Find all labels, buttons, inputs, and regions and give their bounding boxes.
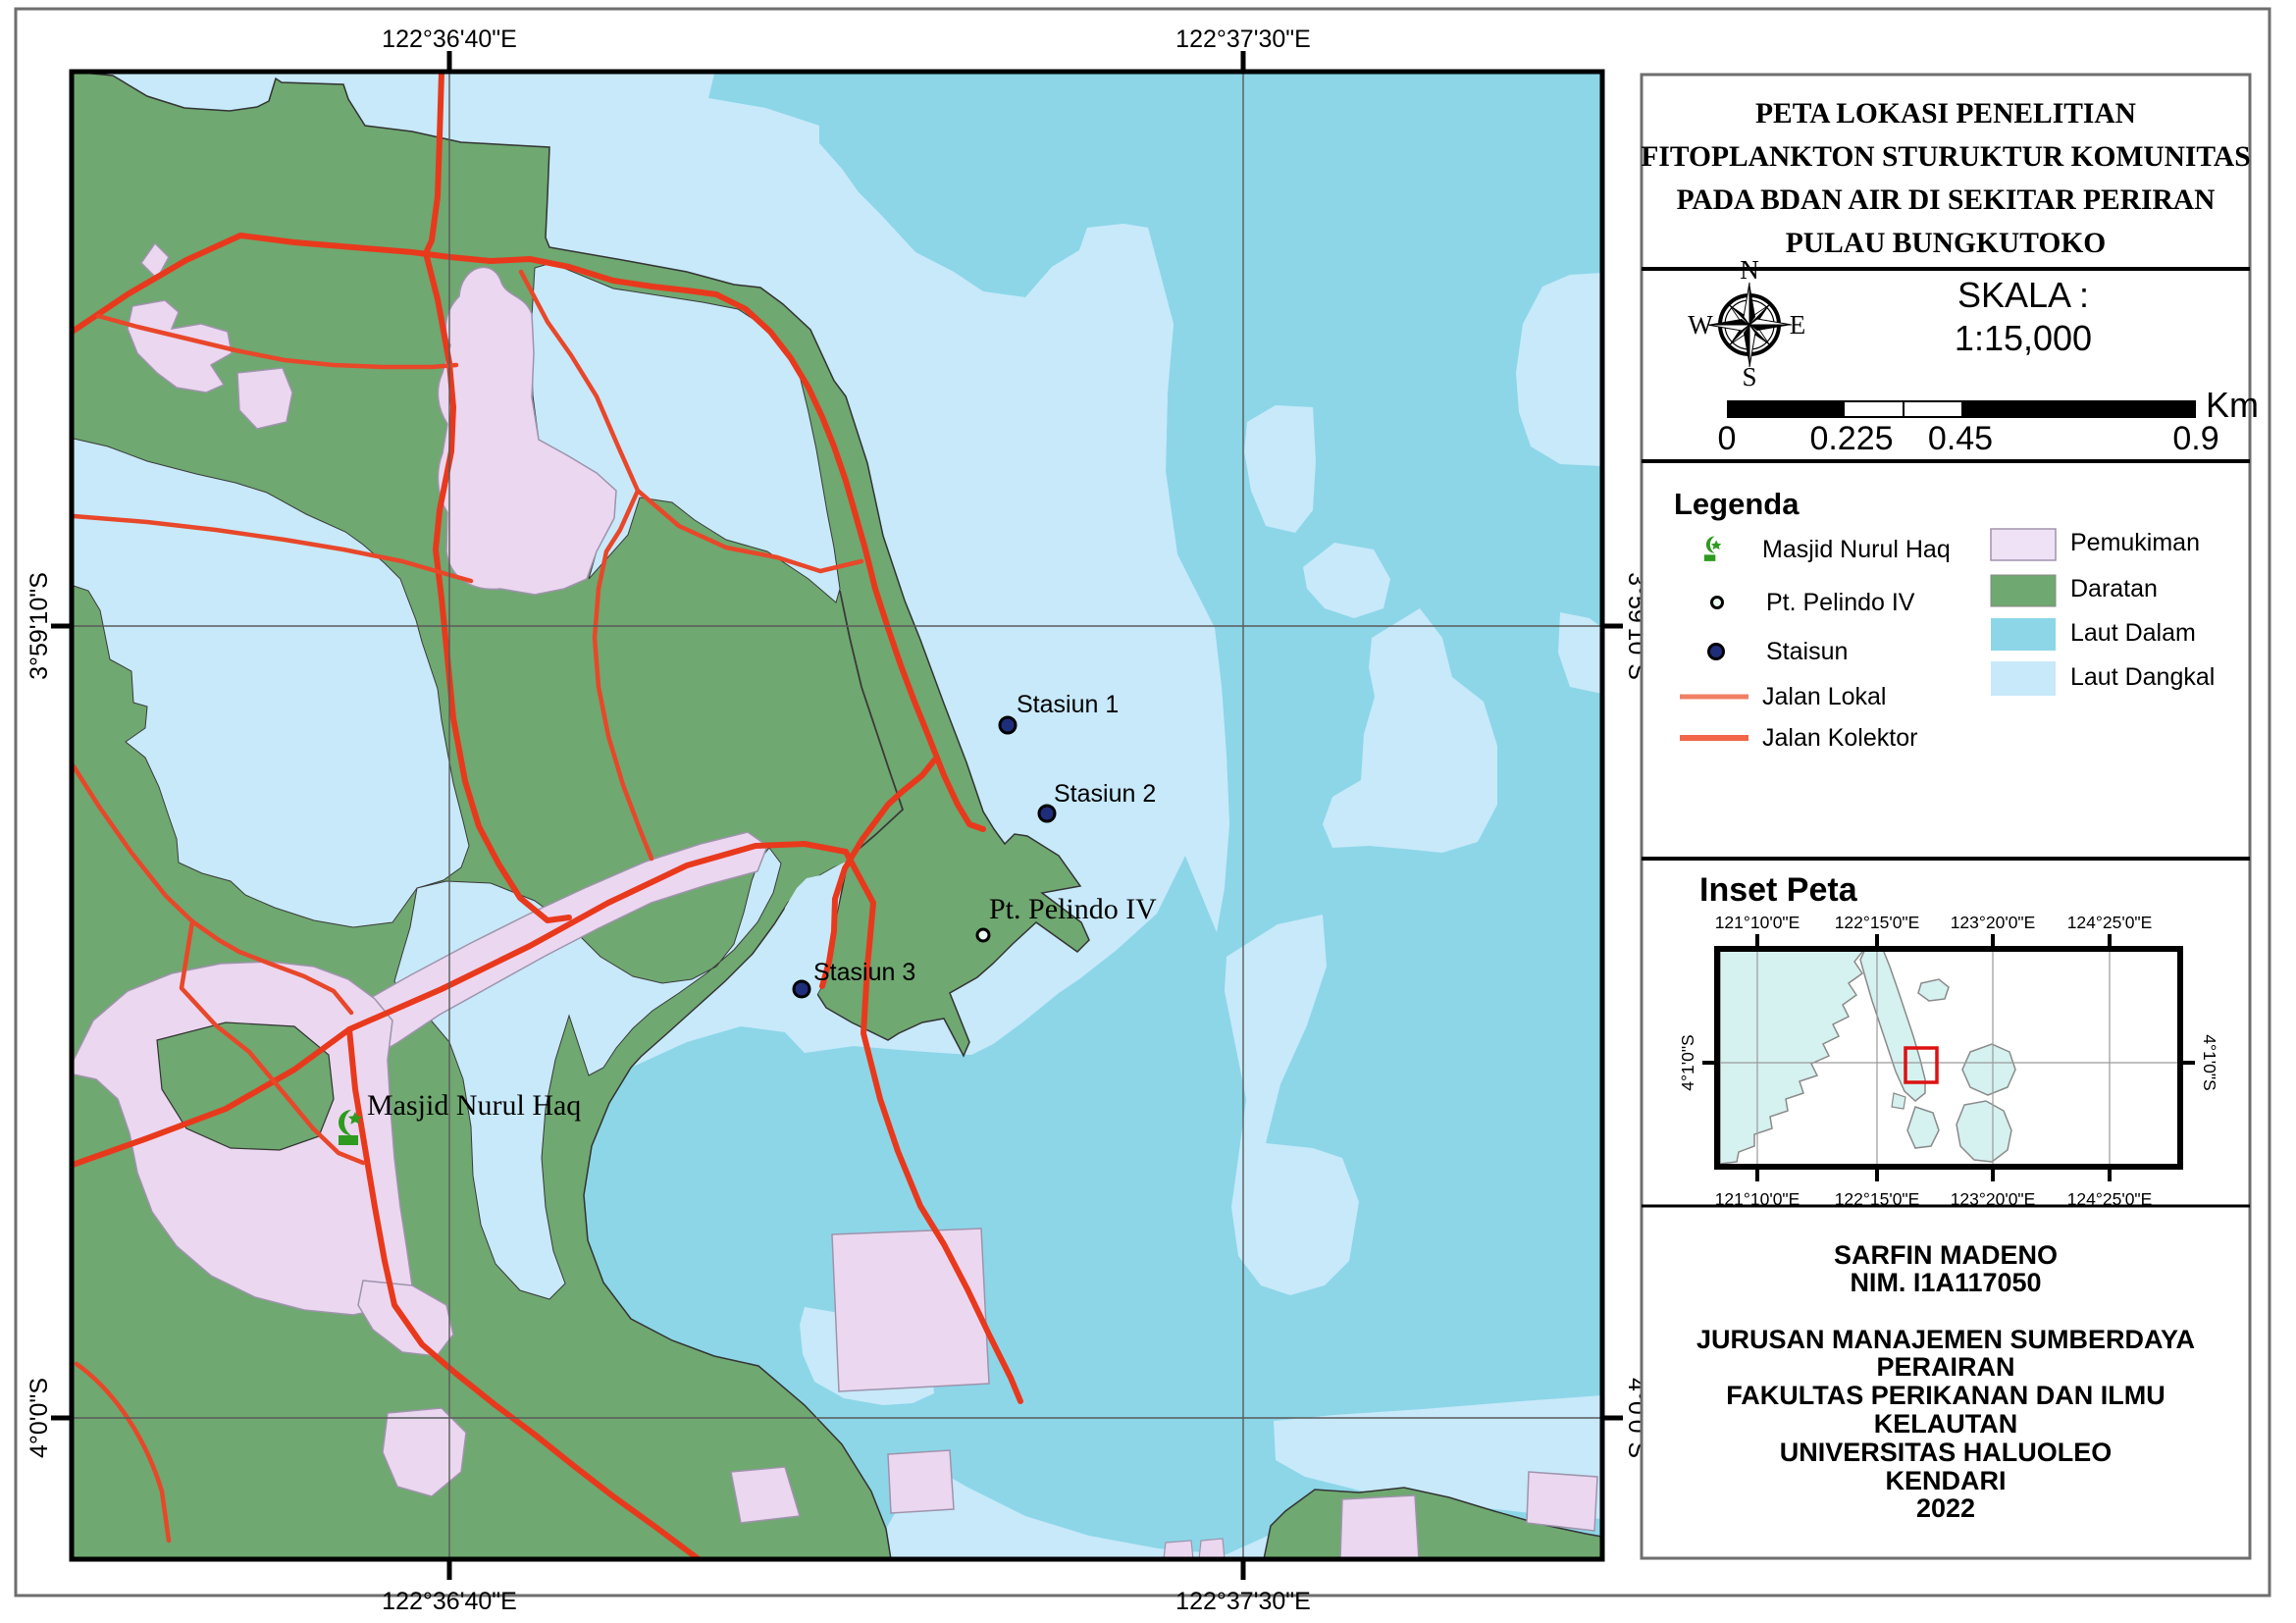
- svg-text:FITOPLANKTON STURUKTUR KOMUNIT: FITOPLANKTON STURUKTUR KOMUNITAS: [1641, 141, 2250, 173]
- svg-text:4°1'0"S: 4°1'0"S: [1678, 1034, 1697, 1090]
- svg-text:122°36'40"E: 122°36'40"E: [382, 1588, 517, 1615]
- svg-text:JURUSAN MANAJEMEN SUMBERDAYA: JURUSAN MANAJEMEN SUMBERDAYA: [1696, 1325, 2195, 1354]
- svg-text:KENDARI: KENDARI: [1885, 1466, 2006, 1495]
- svg-text:124°25'0"E: 124°25'0"E: [2067, 1189, 2153, 1209]
- svg-text:PULAU BUNGKUTOKO: PULAU BUNGKUTOKO: [1786, 228, 2106, 259]
- svg-text:124°25'0"E: 124°25'0"E: [2067, 913, 2153, 932]
- svg-text:0.45: 0.45: [1928, 420, 1993, 457]
- svg-text:Stasiun 1: Stasiun 1: [1017, 691, 1119, 718]
- svg-text:SKALA :: SKALA :: [1957, 275, 2089, 315]
- svg-text:123°20'0"E: 123°20'0"E: [1951, 913, 2036, 932]
- svg-text:E: E: [1790, 310, 1806, 340]
- svg-text:121°10'0"E: 121°10'0"E: [1715, 1189, 1800, 1209]
- svg-text:Laut Dangkal: Laut Dangkal: [2070, 663, 2215, 691]
- svg-text:N: N: [1740, 255, 1759, 285]
- svg-text:Pt. Pelindo IV: Pt. Pelindo IV: [1766, 589, 1915, 616]
- svg-text:Staisun: Staisun: [1766, 638, 1848, 665]
- svg-text:0: 0: [1718, 420, 1737, 457]
- svg-text:UNIVERSITAS HALUOLEO: UNIVERSITAS HALUOLEO: [1780, 1438, 2113, 1467]
- svg-text:122°15'0"E: 122°15'0"E: [1835, 913, 1920, 932]
- svg-text:3°59'10"S: 3°59'10"S: [26, 572, 53, 680]
- svg-text:Jalan Kolektor: Jalan Kolektor: [1762, 724, 1917, 752]
- svg-text:KELAUTAN: KELAUTAN: [1874, 1409, 2017, 1439]
- svg-text:Pemukiman: Pemukiman: [2070, 529, 2200, 556]
- svg-text:FAKULTAS PERIKANAN DAN ILMU: FAKULTAS PERIKANAN DAN ILMU: [1726, 1381, 2165, 1410]
- svg-text:122°36'40"E: 122°36'40"E: [382, 26, 517, 53]
- svg-text:4°1'0"S: 4°1'0"S: [2200, 1034, 2219, 1090]
- svg-text:W: W: [1688, 310, 1713, 340]
- svg-text:121°10'0"E: 121°10'0"E: [1715, 913, 1800, 932]
- svg-text:Masjid Nurul Haq: Masjid Nurul Haq: [367, 1089, 581, 1122]
- svg-text:122°37'30"E: 122°37'30"E: [1175, 26, 1311, 53]
- svg-text:122°15'0"E: 122°15'0"E: [1835, 1189, 1920, 1209]
- svg-text:1:15,000: 1:15,000: [1955, 318, 2092, 358]
- svg-text:Km: Km: [2206, 385, 2259, 425]
- svg-text:PADA BDAN AIR DI SEKITAR PERIR: PADA BDAN AIR DI SEKITAR PERIRAN: [1677, 184, 2216, 216]
- svg-text:Stasiun 2: Stasiun 2: [1054, 780, 1156, 808]
- svg-text:0.225: 0.225: [1809, 420, 1893, 457]
- svg-text:Masjid Nurul Haq: Masjid Nurul Haq: [1762, 536, 1951, 563]
- svg-text:S: S: [1742, 362, 1756, 392]
- svg-text:PETA LOKASI PENELITIAN: PETA LOKASI PENELITIAN: [1755, 98, 2136, 130]
- svg-text:Legenda: Legenda: [1674, 487, 1800, 521]
- svg-text:Pt. Pelindo IV: Pt. Pelindo IV: [989, 893, 1157, 925]
- svg-text:122°37'30"E: 122°37'30"E: [1175, 1588, 1311, 1615]
- svg-text:Jalan Lokal: Jalan Lokal: [1762, 683, 1886, 710]
- svg-text:4°0'0"S: 4°0'0"S: [26, 1378, 53, 1458]
- svg-text:0.9: 0.9: [2172, 420, 2218, 457]
- svg-text:Inset Peta: Inset Peta: [1699, 871, 1858, 909]
- svg-text:PERAIRAN: PERAIRAN: [1876, 1352, 2014, 1382]
- svg-text:SARFIN MADENO: SARFIN MADENO: [1834, 1240, 2058, 1270]
- svg-text:NIM. I1A117050: NIM. I1A117050: [1850, 1268, 2041, 1297]
- svg-text:Stasiun 3: Stasiun 3: [813, 959, 915, 986]
- svg-text:Daratan: Daratan: [2070, 575, 2158, 602]
- svg-text:123°20'0"E: 123°20'0"E: [1951, 1189, 2036, 1209]
- svg-text:2022: 2022: [1916, 1493, 1975, 1523]
- svg-text:Laut Dalam: Laut Dalam: [2070, 619, 2196, 647]
